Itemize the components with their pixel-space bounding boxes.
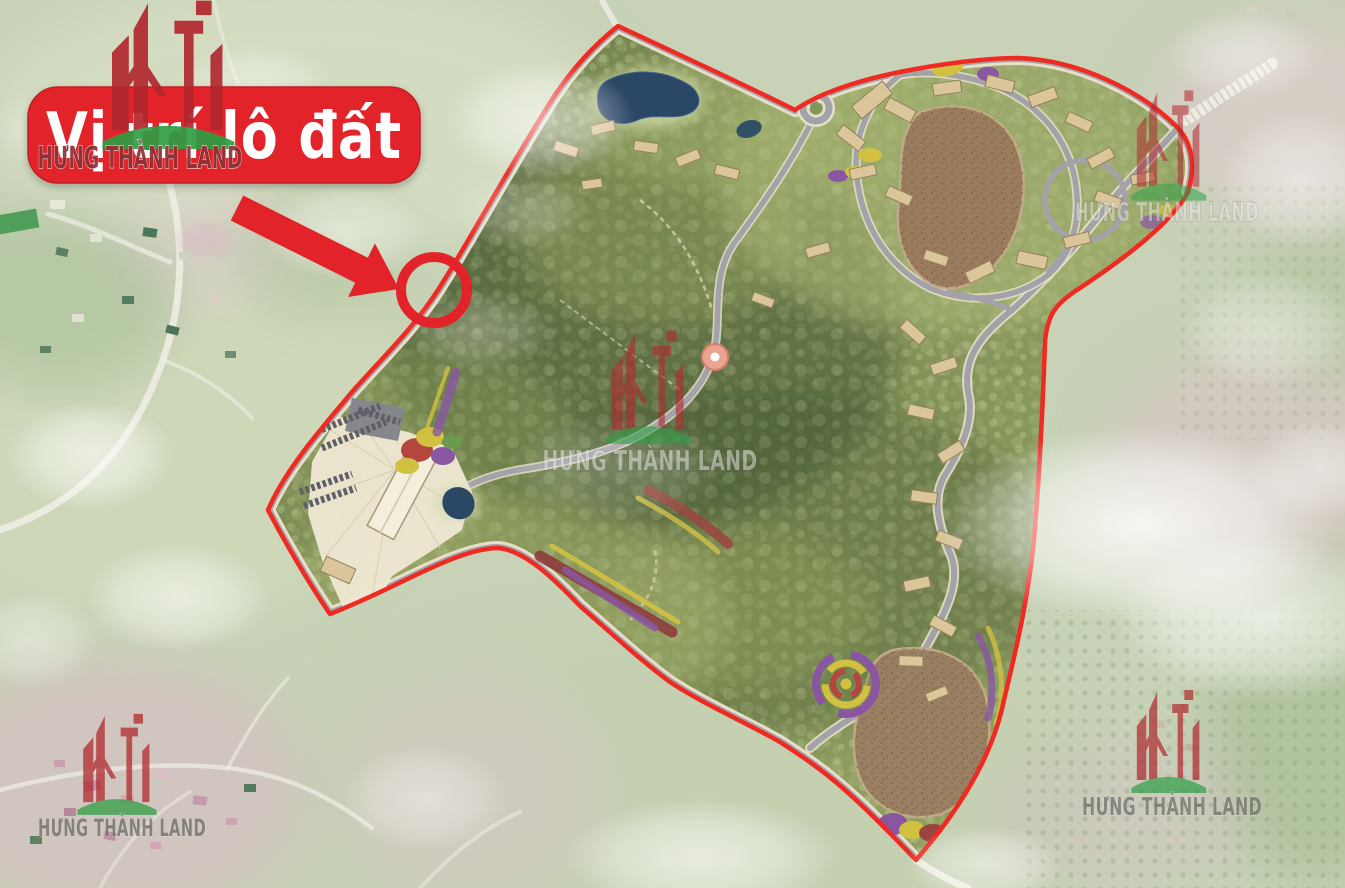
watermark-text: HƯNG THÀNH LAND <box>1082 792 1262 821</box>
spiral-garden <box>812 650 880 718</box>
watermark-text: HƯNG THÀNH LAND <box>1075 196 1259 228</box>
screenshot-root: HƯNG THÀNH LAND HƯNG THÀNH LAND HƯNG THÀ… <box>0 0 1345 888</box>
watermark-text: HƯNG THÀNH LAND <box>543 443 758 477</box>
brand-name-top-left: HƯNG THÀNH LAND <box>38 140 243 176</box>
map-canvas: HƯNG THÀNH LAND HƯNG THÀNH LAND HƯNG THÀ… <box>0 0 1345 888</box>
lookout-tower <box>702 344 728 370</box>
watermark-text: HƯNG THÀNH LAND <box>38 813 206 842</box>
